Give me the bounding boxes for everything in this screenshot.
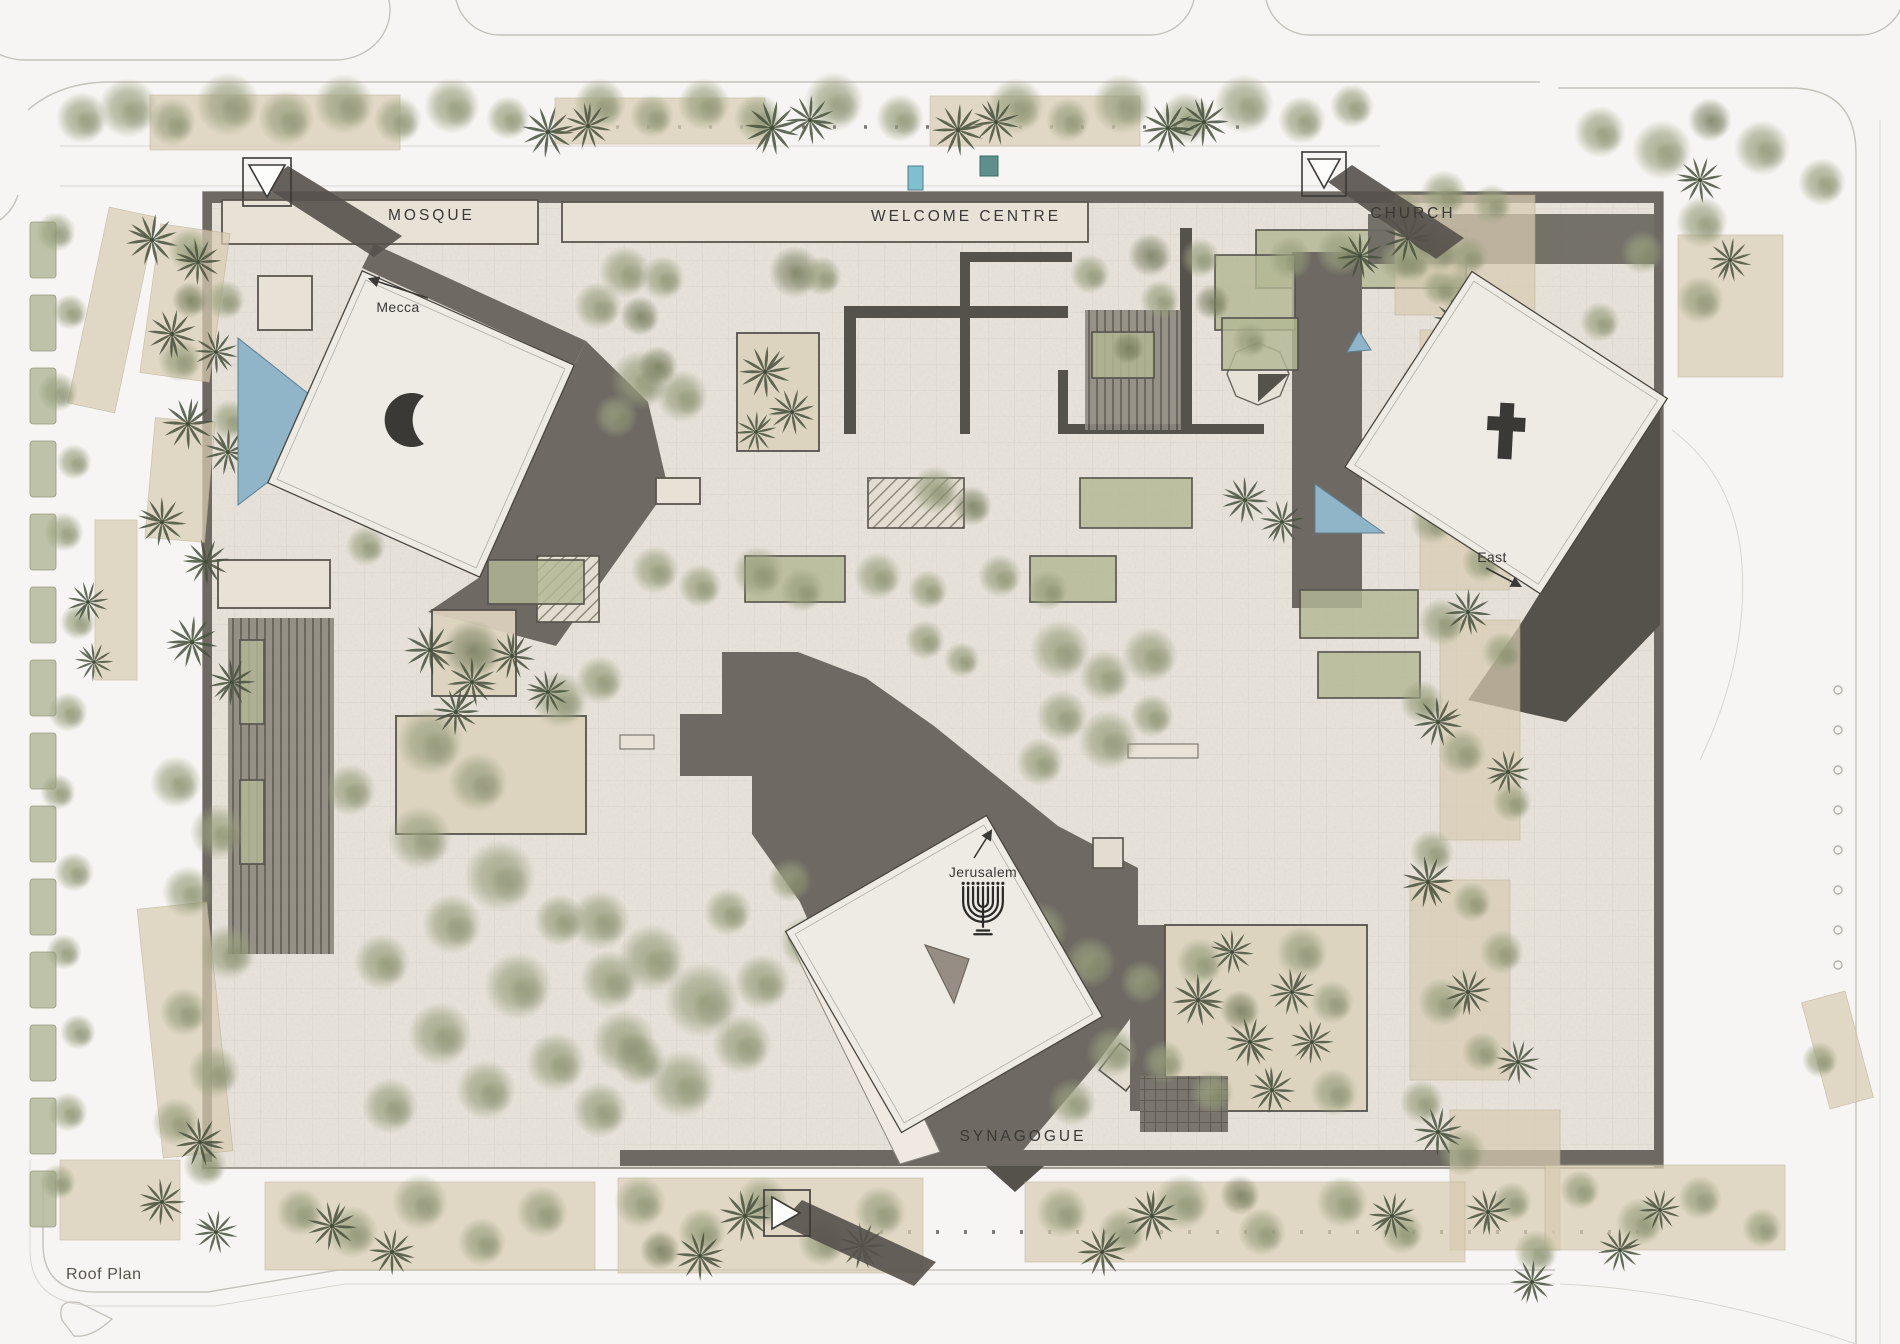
tree-shade [1175,1193,1206,1224]
tree-shade [1159,1055,1183,1079]
tree-shade [1595,315,1617,337]
tree-shade [54,786,74,806]
tree-shade [1507,795,1529,817]
tree-shade [221,943,252,974]
tree-shade [592,298,618,324]
tree-shade [1099,667,1128,696]
tree-shade [967,499,989,521]
tree-shade [1237,94,1270,127]
hedge [30,806,56,862]
hedge [30,587,56,643]
tree-shade [995,569,1019,593]
promenade-basin [980,156,998,176]
tree-shade [1066,1094,1092,1120]
tree-shade [220,93,255,128]
tree-shade [735,1034,768,1067]
tree-shade [1696,213,1725,242]
tree-shade [170,773,199,802]
roof-plan-title: Roof Plan [66,1266,142,1283]
tree-shade [649,562,675,588]
tree-shade [1195,251,1217,273]
tree-shade [1235,1003,1257,1025]
tree-shade [653,359,675,381]
tree-shade [1043,583,1065,605]
tree-shade [200,1158,224,1182]
tree-shade [337,94,370,127]
tree-shade [1497,945,1521,969]
tree-shade [1155,293,1177,315]
tree-shade [634,1193,663,1222]
tree-shade [1637,245,1661,269]
tree-shade [676,387,705,416]
roof-plan-svg: MOSQUE WELCOME CENTRE CHURCH SYNAGOGUE R… [0,0,1900,1344]
tree-shade [1347,99,1371,123]
tree-shade [476,1234,502,1260]
tree-shade [178,1004,204,1030]
tree-shade [170,1114,196,1140]
tree-shade [929,482,955,508]
tree-shade [647,109,671,133]
tree-shade [1816,174,1842,200]
tree-shade [674,1073,711,1110]
tree-shade [1145,248,1169,272]
tree-shade [1755,139,1786,170]
tree-shade [1084,953,1113,982]
tree-shade [1477,1045,1499,1067]
tree-shade [593,1101,624,1132]
tree-shade [182,883,211,912]
tree-shade [510,975,547,1012]
tree-shade [797,583,821,607]
tree-shade [69,865,91,887]
tree-shade [872,568,898,594]
tree-shade [1327,995,1351,1019]
tree-shade [1328,1084,1354,1110]
hedge [30,295,56,351]
tree-shade [1034,754,1060,780]
tree-shade [294,1204,320,1230]
tree-shade [549,1052,582,1085]
tree-shade [1296,112,1322,138]
tree-shade [1427,845,1451,869]
roof-plan-drawing: MOSQUE WELCOME CENTRE CHURCH SYNAGOGUE R… [0,0,1900,1344]
tree-shade [361,539,383,561]
tree-shade [817,269,839,291]
tree-shade [722,904,748,930]
tree-shade [432,1023,467,1058]
tree-shade [479,1080,512,1113]
tree-shade [1456,744,1482,770]
tree-shade [392,112,418,138]
welcome-centre-label: WELCOME CENTRE [871,208,1061,225]
tree-shade [208,1063,237,1092]
tree-shade [1009,97,1040,128]
tree-shade [894,110,920,136]
tree-shade [1436,282,1456,302]
synagogue-label: SYNAGOGUE [960,1128,1087,1145]
tree-shade [923,583,945,605]
tree-shade [1285,251,1309,275]
tree-shade [536,1203,565,1232]
tree-shade [445,97,476,128]
tree-shade [785,873,809,897]
tree-shade [1705,113,1729,137]
tree-shade [1507,1195,1529,1217]
mecca-label: Mecca [376,299,419,315]
tree-shade [54,1176,74,1196]
tree-shade [74,1026,94,1046]
tree-shade [1137,975,1161,999]
tree-shade [53,385,75,407]
tree-shade [1497,645,1519,667]
tree-shade [755,973,786,1004]
tree-shade [1575,1183,1597,1205]
tree-shade [655,1243,677,1265]
tree-shade [1296,943,1325,972]
tree-shade [1594,123,1623,152]
hedge [30,441,56,497]
tree-shade [413,1193,444,1224]
tree-shade [616,1031,651,1066]
east-label: East [1477,549,1507,565]
tree-shade [211,823,242,854]
tree-shade [698,95,727,124]
tree-shade [874,1203,903,1232]
tree-shade [1246,334,1266,354]
tree-shade [445,914,478,947]
tree-shade [422,731,459,768]
tree-shade [635,309,657,331]
tree-shade [658,271,682,295]
tree-shade [1757,1221,1779,1243]
tree-shade [1463,249,1485,271]
tree-shade [66,306,86,326]
tree-shade [74,616,94,636]
tree-shade [51,225,73,247]
tree-shade [611,409,635,433]
tree-shade [70,456,90,476]
tree-shade [827,92,860,125]
tree-shade [594,672,620,698]
tree-shade [1467,895,1489,917]
tree-shade [1056,1203,1085,1232]
tree-shade [63,1105,85,1127]
tree-shade [220,293,242,315]
tree-shade [471,772,504,805]
tree-shade [695,579,719,603]
tree-shade [166,114,192,140]
jerusalem-label: Jerusalem [949,864,1017,880]
tree-shade [1101,730,1134,763]
tree-shade [1143,646,1174,677]
tree-shade [491,864,531,904]
tree-shade [1694,292,1720,318]
tree-shade [1256,1224,1282,1250]
tree-shade [958,654,978,674]
tree-shade [1417,1095,1441,1119]
tree-shade [1397,1225,1421,1249]
church-label: CHURCH [1370,205,1455,222]
tree-shade [1695,1191,1719,1215]
tree-shade [60,946,80,966]
tree-shade [1106,1043,1135,1072]
tree-shade [1336,1193,1365,1222]
tree-shade [59,525,81,547]
promenade-pool [908,166,923,190]
tree-shade [1116,1224,1142,1250]
tree-shade [1235,1188,1257,1210]
tree-shade [63,705,85,727]
tree-shade [344,781,373,810]
tree-shade [1147,709,1171,733]
tree-shade [1085,267,1107,289]
tree-shade [375,953,406,984]
tree-shade [1063,113,1087,137]
tree-shade [1208,296,1228,316]
tree-shade [1816,1054,1836,1074]
tree-shade [412,827,447,862]
tree-shade [594,95,623,124]
tree-shade [502,111,526,135]
hedge [30,879,56,935]
tree-shade [752,563,781,592]
tree-shade [1487,197,1509,219]
tree-shade [593,910,626,943]
tree-shade [1207,1085,1231,1109]
tree-shade [1115,94,1148,127]
hedge [30,1025,56,1081]
tree-shade [175,353,199,377]
tree-shade [920,633,942,655]
tree-shade [553,691,584,722]
tree-shade [186,294,206,314]
tree-shade [383,1097,414,1128]
tree-shade [1655,140,1688,173]
tree-shade [279,109,310,140]
tree-shade [1456,1144,1482,1170]
tree-shade [1124,343,1142,361]
mosque-label: MOSQUE [388,207,475,224]
